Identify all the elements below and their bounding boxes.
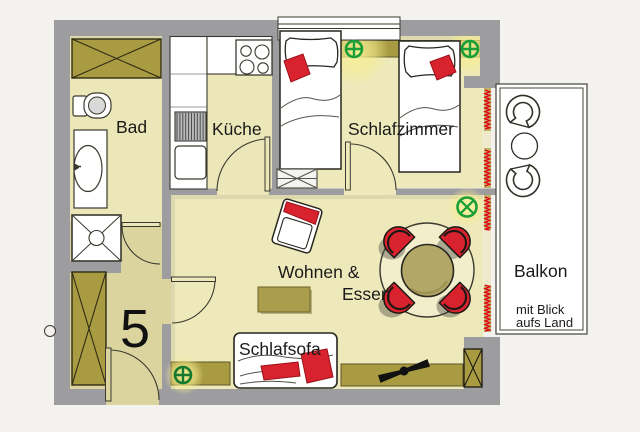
- svg-text:Balkon: Balkon: [514, 261, 568, 281]
- svg-text:5: 5: [120, 299, 150, 359]
- svg-text:Bad: Bad: [116, 117, 147, 137]
- svg-text:Schlafzimmer: Schlafzimmer: [348, 119, 454, 139]
- svg-text:Wohnen &: Wohnen &: [278, 262, 360, 282]
- svg-text:Essen: Essen: [342, 284, 391, 304]
- svg-text:Küche: Küche: [212, 119, 262, 139]
- svg-text:aufs Land: aufs Land: [516, 315, 573, 330]
- svg-text:Schlafsofa: Schlafsofa: [239, 339, 321, 359]
